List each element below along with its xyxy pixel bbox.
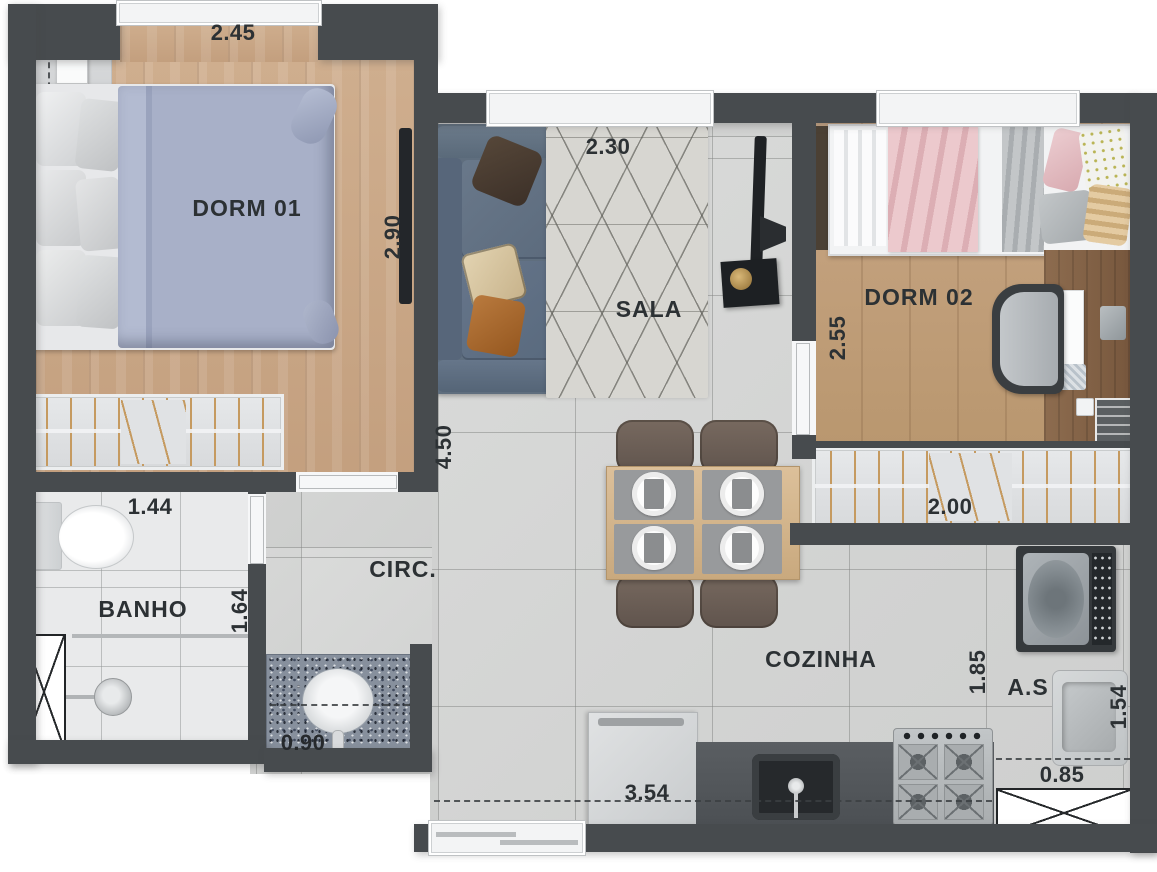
dorm02-door-leaf xyxy=(796,343,810,435)
entry-sliding-door-pane xyxy=(436,832,516,837)
stove-burner xyxy=(898,784,938,820)
wall-top-right-of-window xyxy=(318,4,438,60)
wall-left xyxy=(8,4,36,764)
dim-dorm02-depth: 2.55 xyxy=(825,268,851,408)
dorm01-wardrobe xyxy=(28,394,284,470)
dim-dorm01-width: 2.45 xyxy=(163,20,303,46)
dorm02-wardrobe-wall-edge xyxy=(812,441,1132,448)
sofa-pillow-orange xyxy=(466,294,527,358)
wall-nook-right xyxy=(410,644,432,772)
stove-burner xyxy=(944,744,984,780)
dim-sala-length: 4.50 xyxy=(431,377,457,517)
napkin xyxy=(732,533,752,563)
label-as: A.S xyxy=(958,674,1098,700)
shower-divider xyxy=(72,634,252,638)
nook-cabinet-projection xyxy=(270,704,410,706)
floor-plan: 2.45 DORM 01 2.90 2.30 SALA 4.50 DORM 02… xyxy=(0,0,1157,872)
sala-rug xyxy=(546,126,708,398)
washbasin xyxy=(302,668,374,734)
fridge-handle xyxy=(598,718,684,726)
label-circ: CIRC. xyxy=(333,556,473,582)
dim-dorm01-depth: 2.90 xyxy=(380,167,406,307)
dorm01-door-leaf xyxy=(299,475,397,489)
kitchen-faucet-stem xyxy=(794,792,798,818)
napkin xyxy=(732,479,752,509)
washing-machine-panel xyxy=(1092,553,1112,645)
entry-sliding-door xyxy=(428,820,586,856)
dim-sala-width: 2.30 xyxy=(538,134,678,160)
dim-counter: 0.90 xyxy=(233,730,373,756)
dim-as-width: 0.85 xyxy=(992,762,1132,788)
dorm02-chair-seat xyxy=(1000,292,1058,386)
dining-chair xyxy=(700,574,778,628)
wall-dorm02-left-stub xyxy=(792,435,816,459)
sofa-backrest xyxy=(434,158,462,360)
entry-sliding-door-pane xyxy=(500,840,578,845)
label-dorm02: DORM 02 xyxy=(849,284,989,310)
dorm02-sheet-folds xyxy=(834,130,886,246)
wall-banho-bottom xyxy=(8,740,266,764)
stove-burner xyxy=(944,784,984,820)
sala-window xyxy=(486,90,714,127)
dining-chair xyxy=(616,574,694,628)
dim-banho-depth: 1.64 xyxy=(227,541,253,681)
dorm02-monitor-stand xyxy=(1100,306,1126,340)
fridge xyxy=(588,712,698,826)
dorm02-pink-blanket xyxy=(888,126,978,252)
napkin xyxy=(644,479,664,509)
wall-dorm02-bottom xyxy=(790,523,1132,545)
dim-banho-width: 1.44 xyxy=(80,494,220,520)
label-banho: BANHO xyxy=(73,596,213,622)
dim-cozinha-width: 3.54 xyxy=(577,780,717,806)
dorm02-shelf-unit xyxy=(1095,398,1135,446)
sala-decor-bowl xyxy=(730,268,752,290)
dim-dorm02-closet: 2.00 xyxy=(880,494,1020,520)
label-cozinha: COZINHA xyxy=(751,646,891,672)
stove-burner xyxy=(898,744,938,780)
dorm02-switch xyxy=(1076,398,1094,416)
wall-right xyxy=(1130,93,1157,853)
wall-dorm02-left-upper xyxy=(792,121,816,341)
dorm02-window xyxy=(876,90,1080,127)
shower-head xyxy=(94,678,132,716)
dorm02-pillow-beige xyxy=(1082,183,1134,247)
dorm02-pillow-patterned xyxy=(1078,125,1132,193)
label-sala: SALA xyxy=(579,296,719,322)
napkin xyxy=(644,533,664,563)
dorm02-gray-blanket xyxy=(1002,126,1044,252)
label-dorm01: DORM 01 xyxy=(177,195,317,221)
dim-cozinha-depth: 1.85 xyxy=(965,602,991,742)
dim-as-depth: 1.54 xyxy=(1106,637,1132,777)
washing-machine-drum xyxy=(1028,560,1084,638)
